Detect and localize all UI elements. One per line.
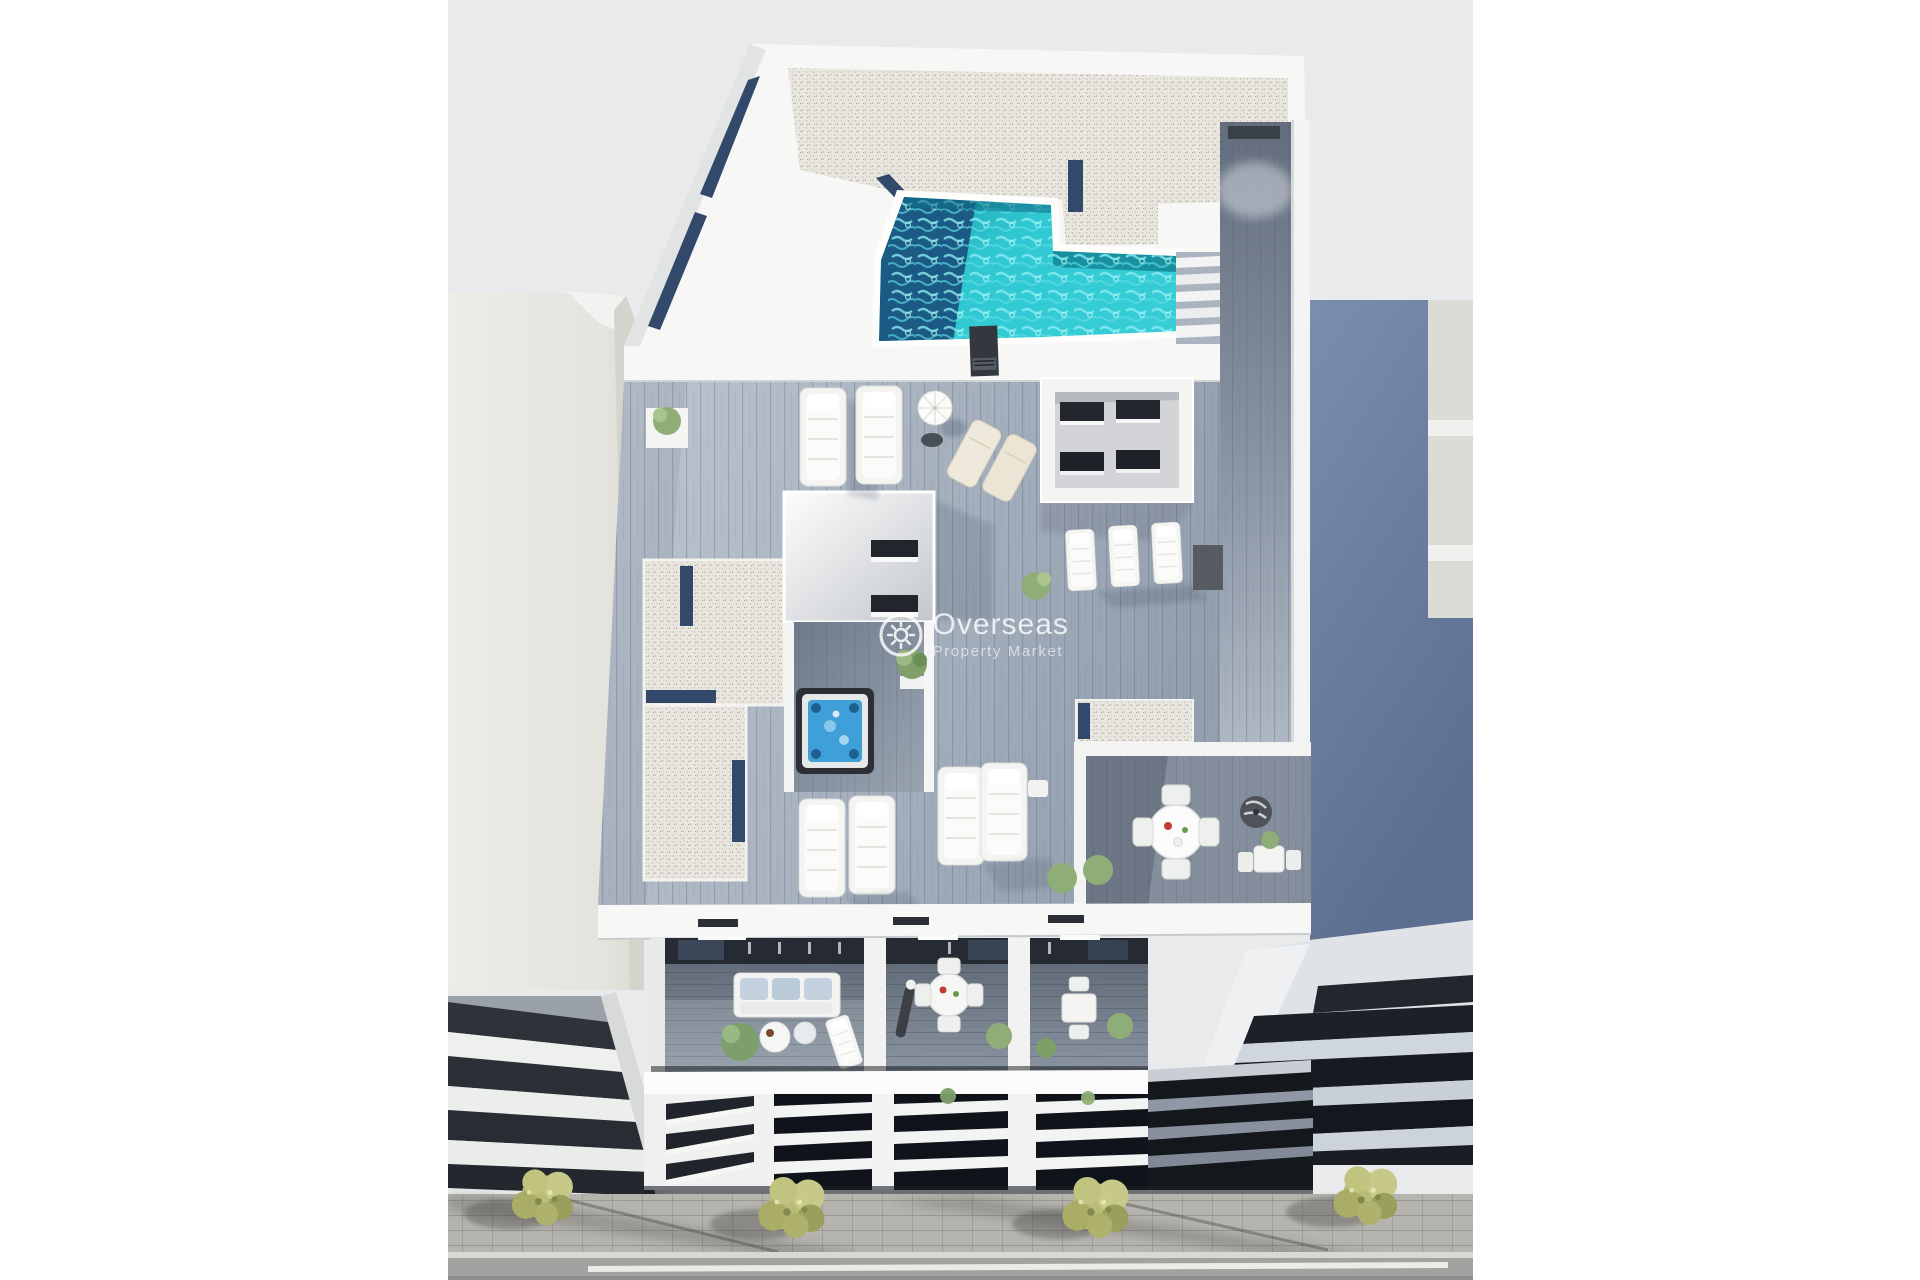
lightwell <box>1041 378 1193 502</box>
plant <box>1047 863 1077 893</box>
padded-lounger <box>856 386 902 484</box>
shadow-louvers <box>1148 1072 1313 1190</box>
furled-parasol <box>1240 796 1272 828</box>
pool-equipment-box <box>969 326 999 377</box>
render-page: Overseas Property Market <box>0 0 1920 1280</box>
terrace-parapet <box>598 903 1311 940</box>
balcony-divider <box>1008 938 1030 1072</box>
street <box>448 1252 1473 1280</box>
walkway-door <box>1228 126 1280 139</box>
plant <box>1083 855 1113 885</box>
balcony-divider <box>864 938 886 1072</box>
potted-plant <box>896 649 927 689</box>
pool-stairs <box>1176 252 1222 344</box>
render-photo: Overseas Property Market <box>448 0 1473 1280</box>
jacuzzi <box>796 688 874 774</box>
padded-lounger <box>800 388 846 486</box>
stairwell-box <box>784 492 934 622</box>
jacuzzi-court <box>784 622 934 792</box>
outdoor-cabinet <box>1193 545 1223 590</box>
balcony-terraces <box>651 935 1148 1074</box>
render-scene <box>448 0 1473 1280</box>
balcony-glazing <box>651 938 1148 964</box>
